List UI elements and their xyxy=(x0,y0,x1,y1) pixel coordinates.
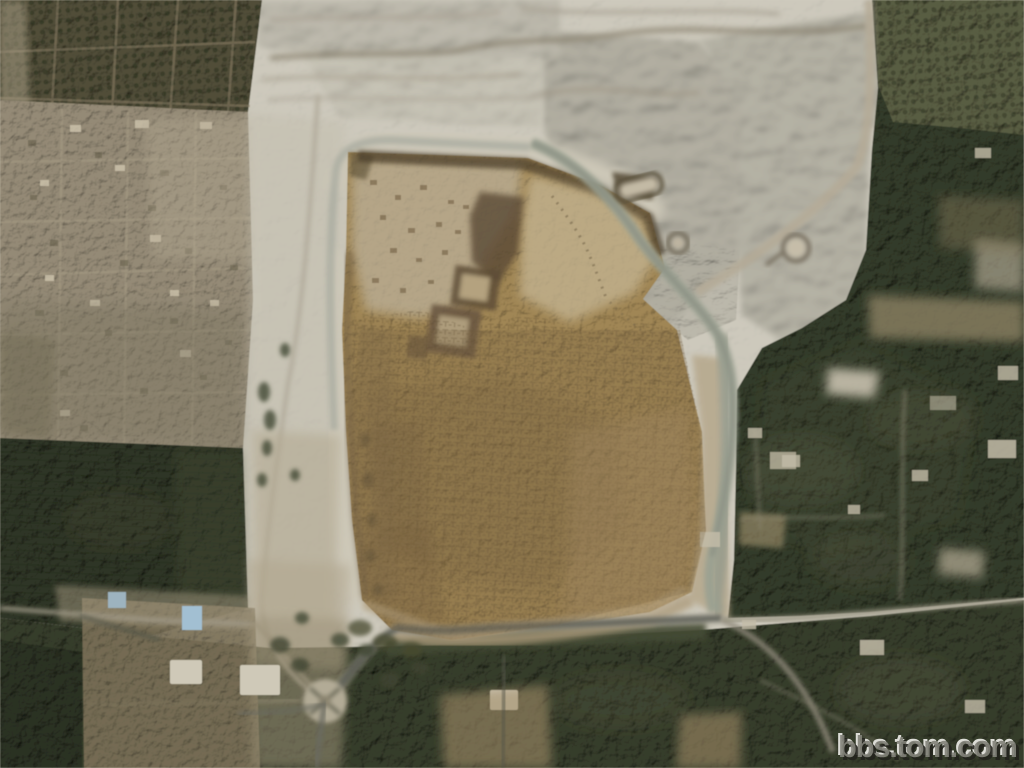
svg-text:bbs.tom.com: bbs.tom.com xyxy=(838,729,1018,764)
